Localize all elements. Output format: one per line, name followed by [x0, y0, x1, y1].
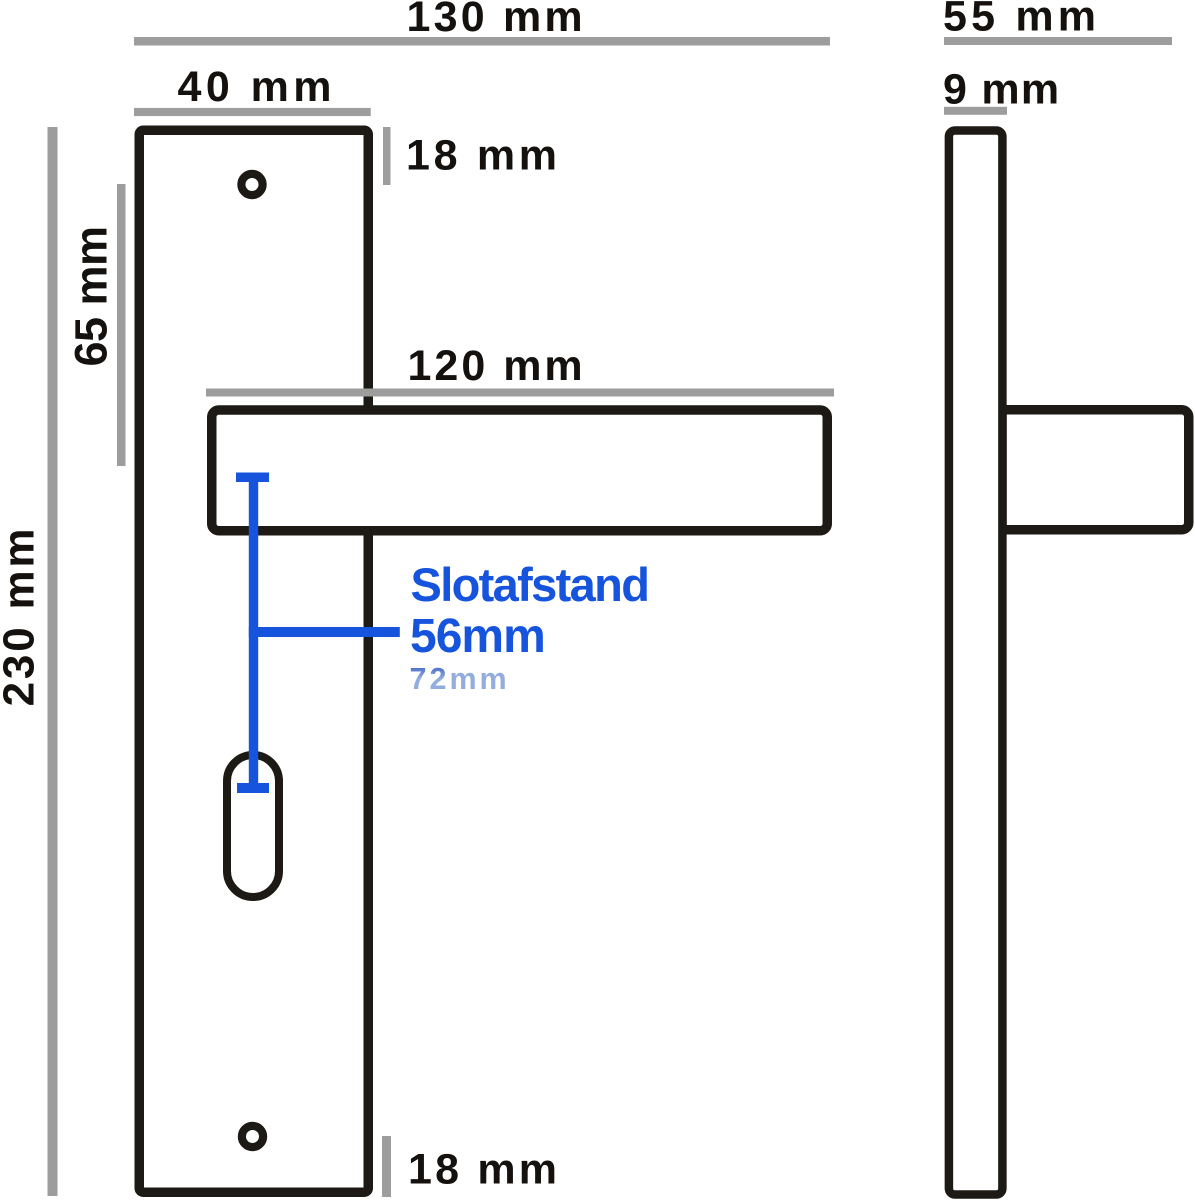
svg-text:65 mm: 65 mm	[66, 226, 117, 366]
svg-text:130 mm: 130 mm	[407, 0, 586, 41]
svg-text:56mm: 56mm	[410, 610, 545, 663]
svg-text:120 mm: 120 mm	[408, 342, 586, 390]
svg-text:72mm: 72mm	[410, 662, 510, 696]
svg-text:Slotafstand: Slotafstand	[411, 558, 649, 611]
svg-text:55 mm: 55 mm	[943, 0, 1100, 41]
svg-text:18 mm: 18 mm	[408, 1146, 560, 1194]
svg-text:40 mm: 40 mm	[178, 63, 337, 111]
svg-text:230 mm: 230 mm	[0, 526, 44, 707]
svg-text:9 mm: 9 mm	[943, 66, 1060, 114]
svg-text:18 mm: 18 mm	[406, 132, 561, 180]
